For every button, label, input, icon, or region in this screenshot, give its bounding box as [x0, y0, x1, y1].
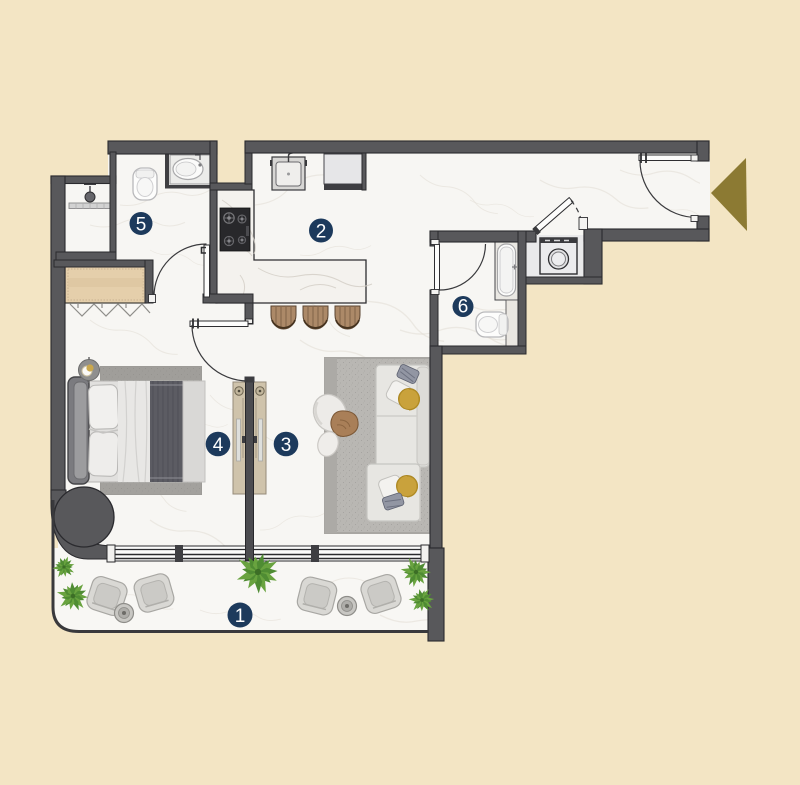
svg-text:2: 2 [316, 222, 327, 243]
svg-text:5: 5 [136, 215, 147, 236]
svg-text:1: 1 [235, 606, 246, 627]
svg-text:6: 6 [458, 297, 469, 318]
svg-text:4: 4 [213, 435, 224, 456]
svg-text:3: 3 [281, 435, 292, 456]
